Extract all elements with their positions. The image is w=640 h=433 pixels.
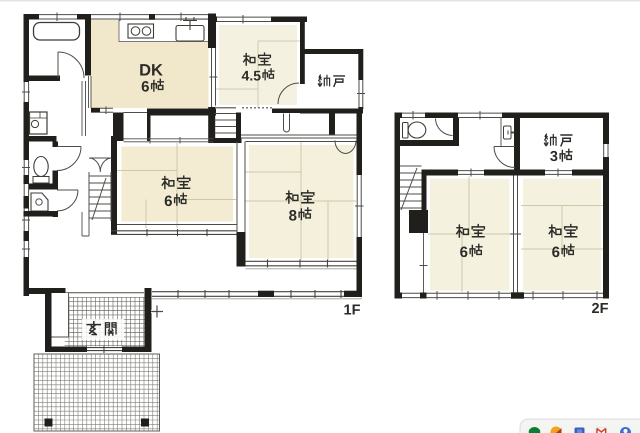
svg-text:6: 6 (141, 79, 149, 96)
svg-text:8: 8 (289, 208, 297, 225)
svg-text:3: 3 (550, 149, 558, 165)
svg-text:6: 6 (552, 244, 560, 261)
svg-text:DK: DK (139, 62, 163, 80)
svg-text:1F: 1F (344, 303, 361, 319)
svg-text:6: 6 (164, 193, 172, 210)
svg-text:2F: 2F (592, 301, 609, 317)
svg-text:4.5: 4.5 (242, 68, 262, 84)
svg-text:6: 6 (460, 244, 468, 261)
